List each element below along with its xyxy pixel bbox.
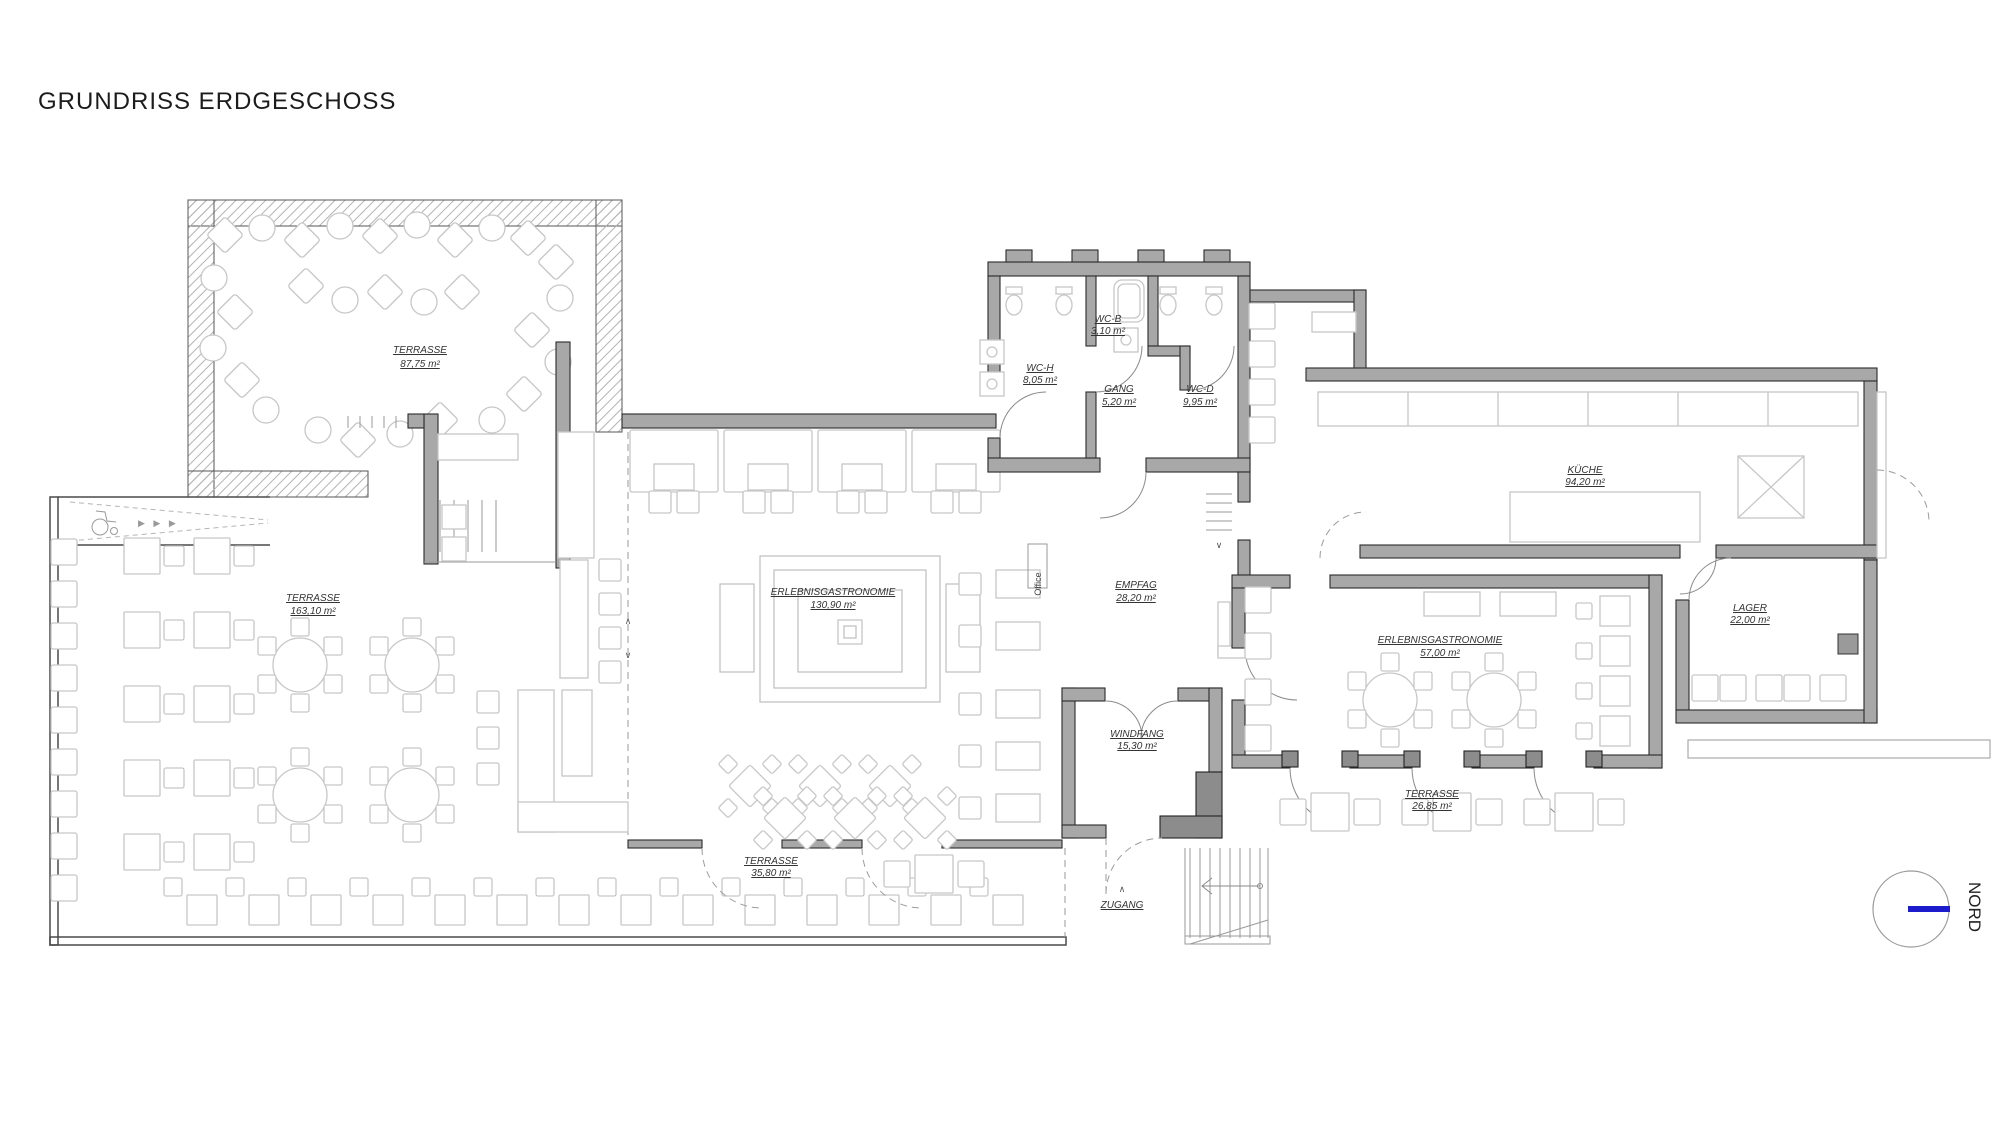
label-terrasse-bottom-area: 35,80 m² (751, 868, 791, 879)
kitchen-furniture (1249, 303, 1858, 542)
label-empfang-area: 28,20 m² (1115, 593, 1156, 604)
label-empfang-name: EMPFAG (1115, 580, 1157, 591)
central-buffet (720, 556, 980, 702)
floor-plan-canvas: GRUNDRISS ERDGESCHOSS (0, 0, 2000, 1128)
main-hall-walls (348, 342, 1062, 908)
north-compass-icon: NORD (1873, 871, 1984, 947)
label-wc-h-area: 8,05 m² (1023, 375, 1058, 386)
wheelchair-icon (92, 511, 118, 535)
empfang-caret-down: ∨ (1216, 540, 1223, 550)
zugang-label: ZUGANG (1100, 900, 1144, 911)
label-lager-name: LAGER (1733, 603, 1767, 614)
label-wc-d-area: 9,95 m² (1183, 397, 1218, 408)
upper-terrace-furniture (200, 212, 574, 458)
left-terrace-furniture (51, 538, 454, 901)
divider-caret-down: ∨ (625, 650, 632, 660)
label-wc-d-name: WC-D (1186, 384, 1213, 395)
office-sign-label: Office (1033, 572, 1043, 595)
windfang-walls (1062, 688, 1222, 894)
floor-plan-drawing: ▶ ▶ ▶ (0, 0, 2000, 1128)
label-terrasse-bottom-name: TERRASSE (744, 856, 798, 867)
lager-walls (1676, 558, 1990, 758)
label-erlebnis-right-area: 57,00 m² (1420, 648, 1460, 659)
kitchen-walls (1238, 290, 1929, 594)
label-wc-b-area: 3,10 m² (1091, 326, 1126, 337)
label-windfang-area: 15,30 m² (1117, 741, 1157, 752)
label-terrasse-right-area: 26,85 m² (1411, 801, 1452, 812)
label-gang-area: 5,20 m² (1102, 397, 1137, 408)
label-terrasse-left-name: TERRASSE (286, 593, 340, 604)
label-gang-name: GANG (1104, 384, 1134, 395)
label-terrasse-top-area: 87,75 m² (400, 359, 440, 370)
bottom-terrace-table (884, 855, 984, 893)
label-kueche-area: 94,20 m² (1565, 477, 1605, 488)
label-kueche-name: KÜCHE (1567, 464, 1602, 476)
entrance-stairs (1185, 848, 1270, 944)
label-windfang-name: WINDFANG (1110, 729, 1164, 740)
ramp-direction-arrows: ▶ ▶ ▶ (138, 518, 179, 528)
main-hall-counters (438, 432, 628, 832)
main-hall-right-tables (959, 570, 1040, 822)
lager-shelves (1692, 634, 1858, 701)
label-erlebnis-right-name: ERLEBNISGASTRONOMIE (1378, 635, 1503, 646)
label-wc-b-name: WC-B (1095, 314, 1122, 325)
main-hall-booths (630, 430, 1000, 513)
zugang-caret-up: ∧ (1119, 884, 1126, 894)
label-terrasse-top-name: TERRASSE (393, 345, 447, 356)
north-arrow (1908, 906, 1950, 912)
right-dining-furniture (1245, 587, 1630, 751)
label-wc-h-name: WC-H (1026, 363, 1054, 374)
main-hall-diamond-tables (696, 732, 978, 871)
divider-caret-up: ∧ (625, 616, 632, 626)
label-erlebnis-main-area: 130,90 m² (810, 600, 856, 611)
label-terrasse-right-name: TERRASSE (1405, 789, 1459, 800)
label-terrasse-left-area: 163,10 m² (290, 606, 336, 617)
north-label: NORD (1965, 882, 1984, 932)
label-lager-area: 22,00 m² (1729, 615, 1770, 626)
label-erlebnis-main-name: ERLEBNISGASTRONOMIE (771, 587, 896, 598)
